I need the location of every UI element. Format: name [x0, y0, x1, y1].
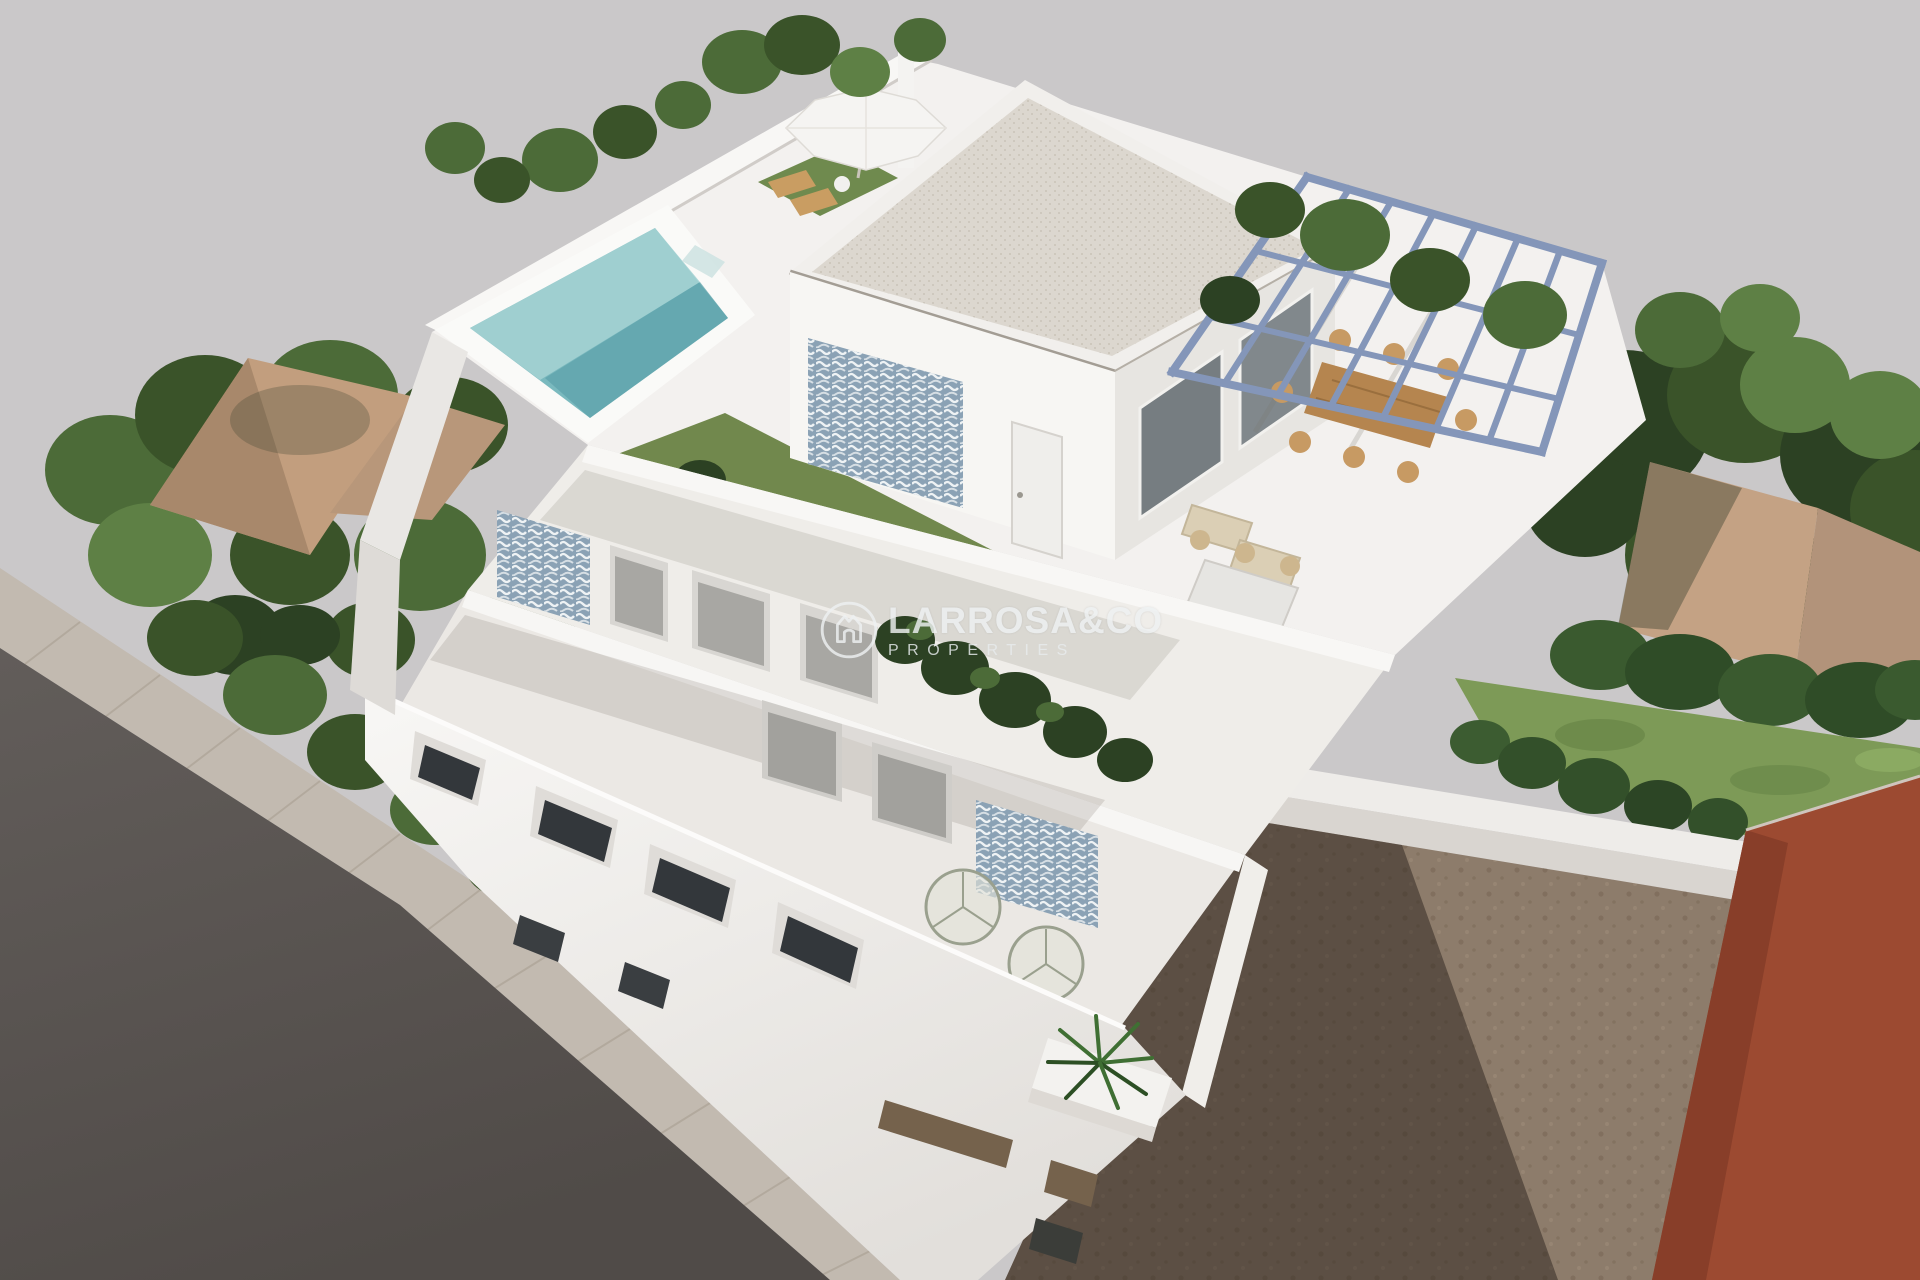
penthouse-door [1012, 422, 1062, 558]
scene-3d-render [0, 0, 1920, 1280]
render-canvas: LARROSA&CO PROPERTIES [0, 0, 1920, 1280]
side-table [834, 176, 850, 192]
